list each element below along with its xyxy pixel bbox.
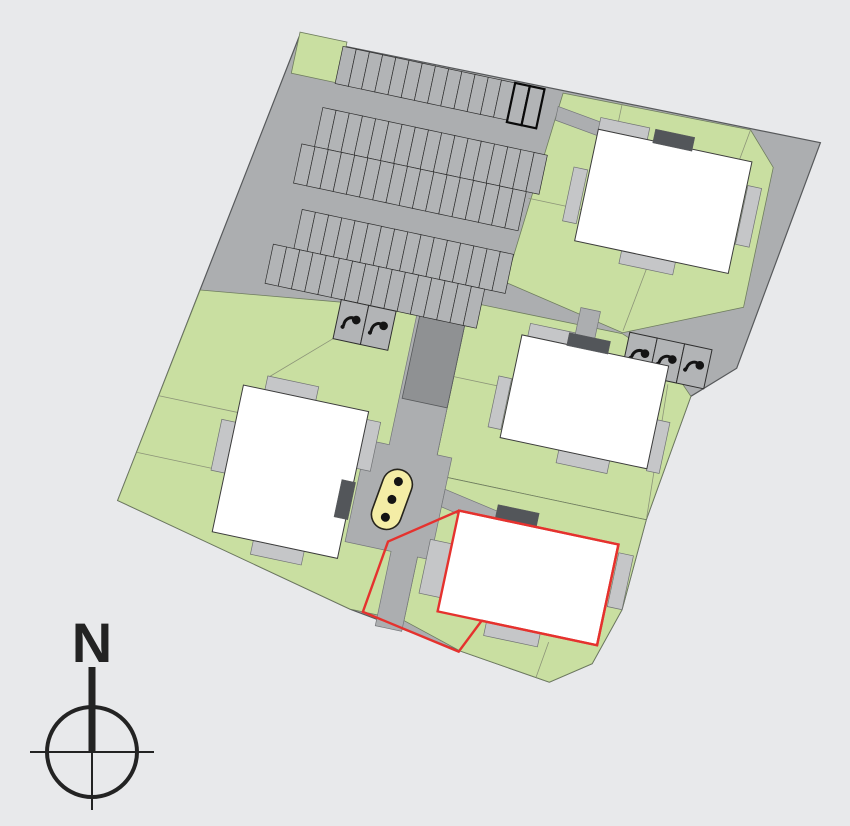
site-plan-rotated-group bbox=[99, 15, 820, 714]
site-plan-svg: N bbox=[0, 0, 850, 826]
compass: N bbox=[30, 611, 154, 810]
site-plan-canvas: N bbox=[0, 0, 850, 826]
compass-north-label: N bbox=[72, 611, 112, 674]
